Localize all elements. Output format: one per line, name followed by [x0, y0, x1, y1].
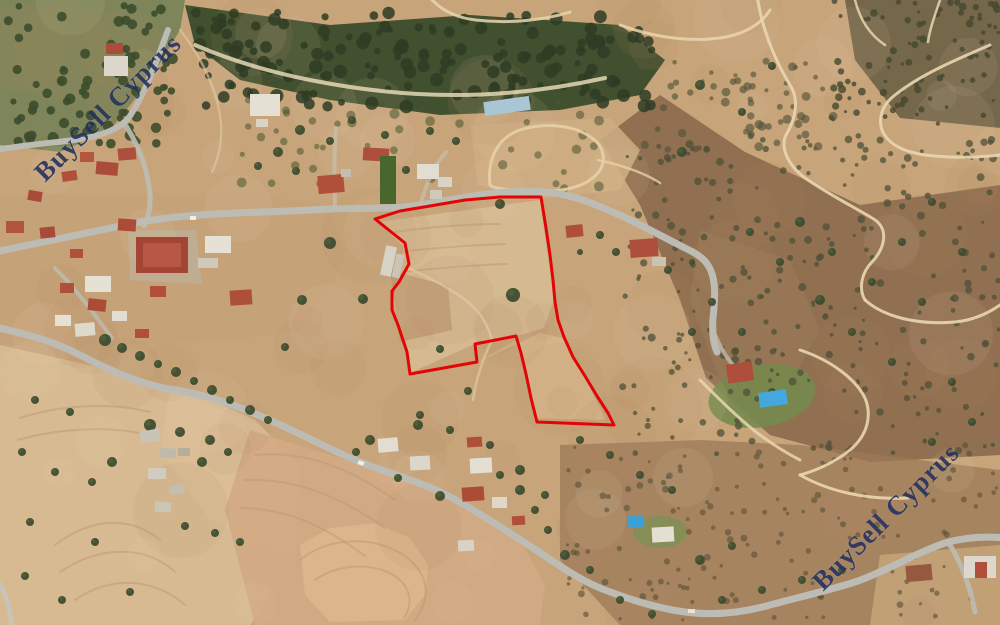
building — [190, 216, 196, 220]
building — [512, 516, 525, 526]
building — [317, 174, 344, 194]
building — [410, 455, 431, 470]
building — [380, 156, 396, 204]
building — [87, 298, 106, 312]
building — [61, 170, 77, 182]
satellite-imagery — [0, 0, 1000, 625]
building — [458, 540, 475, 552]
building — [205, 236, 231, 253]
building — [652, 526, 675, 542]
building — [492, 497, 507, 508]
building — [74, 322, 95, 337]
building — [975, 562, 987, 578]
building — [143, 243, 181, 267]
building — [106, 43, 123, 54]
building — [112, 311, 127, 321]
building — [160, 447, 177, 458]
building — [55, 315, 71, 326]
building — [6, 221, 24, 233]
building — [629, 238, 658, 258]
building — [85, 276, 111, 292]
building — [627, 516, 644, 527]
street-north — [334, 128, 336, 207]
building — [118, 147, 137, 161]
building — [80, 152, 94, 162]
building — [905, 564, 932, 582]
building — [417, 164, 439, 179]
building — [230, 289, 253, 305]
building — [104, 56, 128, 76]
building — [250, 94, 280, 116]
building — [565, 224, 583, 238]
building — [652, 257, 666, 266]
building — [39, 226, 55, 239]
building — [118, 218, 137, 231]
building — [688, 609, 695, 613]
building — [377, 437, 398, 453]
building — [438, 177, 452, 187]
building — [135, 329, 149, 338]
building — [256, 119, 268, 127]
building — [150, 286, 166, 297]
building — [462, 486, 485, 502]
building — [155, 501, 172, 512]
building — [198, 258, 218, 268]
satellite-listing-image: BuySell Cyprus BuySell Cyprus — [0, 0, 1000, 625]
building — [148, 468, 166, 479]
building — [95, 161, 118, 176]
building — [60, 283, 74, 293]
building — [726, 361, 754, 383]
building — [178, 448, 190, 456]
building — [70, 249, 83, 258]
building — [470, 457, 493, 473]
building — [341, 169, 351, 177]
building — [467, 436, 483, 447]
building — [430, 190, 442, 199]
